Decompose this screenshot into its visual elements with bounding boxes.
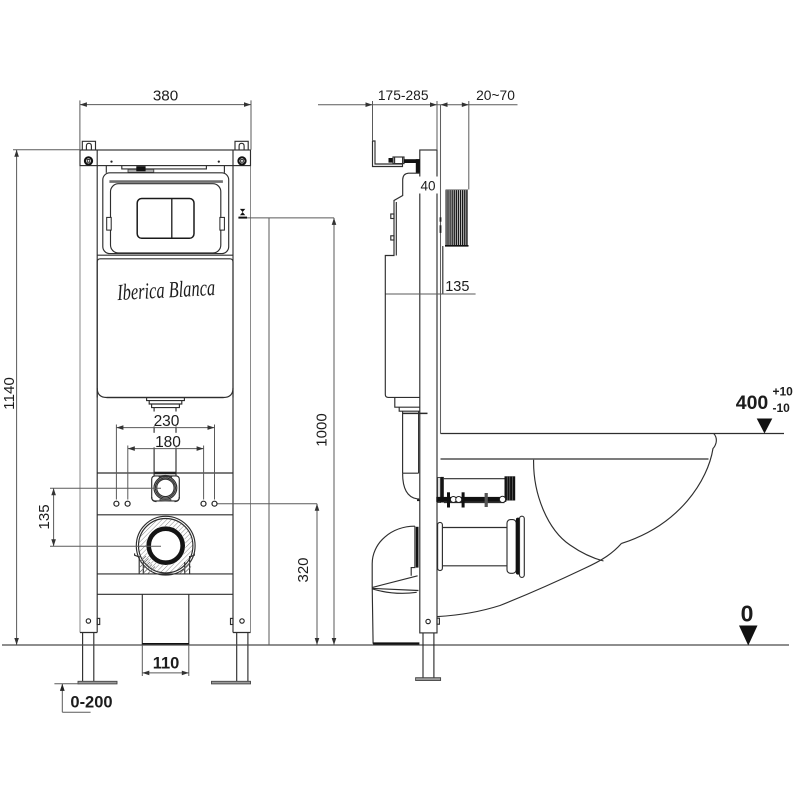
svg-text:0: 0 xyxy=(741,600,754,626)
svg-text:1000: 1000 xyxy=(314,413,331,446)
svg-text:175-285: 175-285 xyxy=(378,88,429,103)
svg-text:20~70: 20~70 xyxy=(476,88,515,103)
svg-text:230: 230 xyxy=(154,413,180,430)
svg-text:380: 380 xyxy=(153,87,178,104)
svg-text:1140: 1140 xyxy=(1,377,18,410)
svg-text:180: 180 xyxy=(155,434,181,451)
svg-text:400: 400 xyxy=(736,392,769,414)
svg-text:135: 135 xyxy=(36,504,53,529)
svg-text:Iberica Blanca: Iberica Blanca xyxy=(116,275,216,305)
svg-text:320: 320 xyxy=(295,557,312,582)
svg-text:40: 40 xyxy=(420,178,435,193)
svg-text:+10: +10 xyxy=(773,385,794,399)
svg-text:0-200: 0-200 xyxy=(70,694,112,712)
svg-text:110: 110 xyxy=(153,655,180,673)
svg-text:135: 135 xyxy=(445,279,469,295)
svg-text:-10: -10 xyxy=(773,401,791,415)
